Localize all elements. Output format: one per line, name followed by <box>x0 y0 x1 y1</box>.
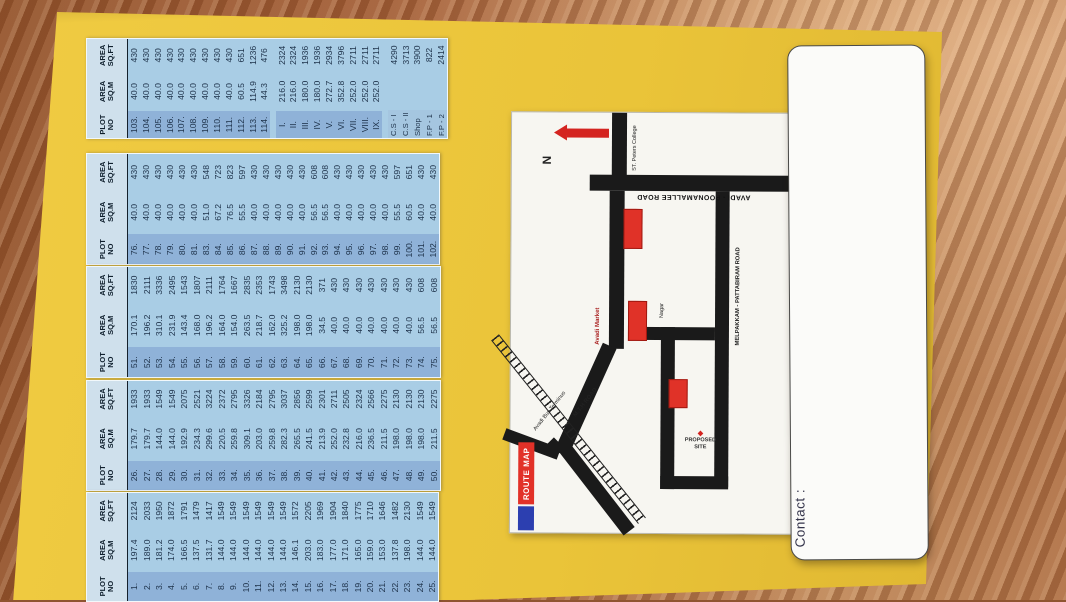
plot-no-cell: 32. <box>203 461 215 490</box>
table-row: 59.154.01667 <box>228 267 240 377</box>
area-sqft-cell: 430 <box>164 154 176 190</box>
plot-no-cell: II. <box>288 111 300 138</box>
plot-no-cell: 30. <box>178 461 190 490</box>
landmark-marker-1 <box>623 209 642 249</box>
area-sqft-cell: 1543 <box>178 267 190 303</box>
plot-no-cell: 36. <box>253 461 265 490</box>
area-sqm-cell: 40.0 <box>199 72 211 112</box>
plot-no-cell: 1. <box>128 572 140 601</box>
table-row: 74.56.5608 <box>415 267 427 377</box>
plot-no-cell: 9. <box>227 572 239 601</box>
area-sqft-cell: 2711 <box>371 39 383 72</box>
area-sqft-cell: 1549 <box>277 493 289 529</box>
plot-no-cell: 72. <box>390 347 402 377</box>
table-row: 78.40.0430 <box>152 154 164 264</box>
column-header: AREASQ.FT <box>99 39 116 72</box>
table-row: 101.40.0430 <box>415 154 427 264</box>
area-sqm-cell: 40.0 <box>427 190 439 234</box>
plot-no-cell: 77. <box>140 234 152 264</box>
area-sqft-cell: 2566 <box>365 381 377 417</box>
area-sqft-cell: 2414 <box>435 39 447 71</box>
table-row: 109.40.0430 <box>199 39 211 138</box>
area-sqm-cell: 309.1 <box>240 417 252 461</box>
north-arrow <box>554 124 609 140</box>
area-sqft-cell: 1479 <box>190 493 202 529</box>
table-row: 89.40.0430 <box>272 154 284 264</box>
plot-no-cell: 13. <box>277 572 289 601</box>
area-sqft-cell: 1417 <box>202 493 214 529</box>
plot-no-cell: 33. <box>215 461 227 490</box>
table-row: 56.168.01807 <box>190 267 202 377</box>
table-row: 114.44.3476 <box>258 39 270 138</box>
table-row: 17.177.01904 <box>327 493 339 601</box>
area-sqft-cell: 430 <box>390 267 402 303</box>
column-header: AREASQ.FT <box>99 154 116 190</box>
plot-no-cell: 26. <box>128 461 140 490</box>
plot-no-cell: 61. <box>253 347 265 377</box>
plot-area-table-51-75: PLOTNOAREASQ.MAREASQ.FT51.170.1183052.19… <box>86 266 441 378</box>
area-sqft-cell: 430 <box>176 154 188 190</box>
area-sqm-cell: 252.0 <box>347 72 359 112</box>
area-sqm-cell: 171.0 <box>339 529 351 572</box>
area-sqft-cell: 608 <box>428 267 440 303</box>
table-row: 39.265.52856 <box>290 381 302 490</box>
table-row: 15.203.02205 <box>302 493 314 601</box>
area-sqm-cell: 198.0 <box>415 417 427 461</box>
table-header: PLOTNOAREASQ.MAREASQ.FT <box>87 381 128 490</box>
area-sqm-cell: 56.5 <box>320 190 332 234</box>
plot-no-cell: 15. <box>302 572 314 601</box>
plot-no-cell: 84. <box>212 234 224 264</box>
plot-no-cell: F.P - 1 <box>423 110 435 138</box>
plot-area-table-103-114: PLOTNOAREASQ.MAREASQ.FT103.40.0430104.40… <box>86 38 448 139</box>
area-sqm-cell: 40.0 <box>248 190 260 234</box>
route-map-banner: ROUTE MAP <box>518 442 534 504</box>
plot-no-cell: C.S - I <box>388 110 400 138</box>
area-sqm-cell: 40.0 <box>211 72 223 112</box>
area-sqft-cell: 2795 <box>228 381 240 417</box>
proposed-site-label: ◆ PROPOSED SITE <box>676 431 724 451</box>
area-sqft-cell: 430 <box>260 154 272 190</box>
plot-no-cell: 58. <box>215 347 227 377</box>
plot-no-cell: 10. <box>240 572 252 601</box>
area-sqft-cell: 430 <box>187 39 199 72</box>
plot-no-cell: 47. <box>390 461 402 490</box>
area-sqm-cell: 234.3 <box>190 417 202 461</box>
column-header: PLOTNO <box>99 111 116 138</box>
area-sqft-cell: 1549 <box>252 493 264 529</box>
table-row: 112.60.5651 <box>235 39 247 138</box>
plot-no-cell: 79. <box>164 234 176 264</box>
plot-no-cell: 57. <box>203 347 215 377</box>
table-row: 77.40.0430 <box>140 154 152 264</box>
column-header: AREASQ.FT <box>99 493 116 529</box>
desk-photo: { "table_headers": [["PLOT","NO"],["AREA… <box>0 0 1066 600</box>
area-sqft-cell: 430 <box>188 154 200 190</box>
area-sqft-cell: 2835 <box>240 267 252 303</box>
area-sqm-cell: 153.0 <box>376 529 388 572</box>
plot-no-cell: 14. <box>289 572 301 601</box>
area-sqft-cell: 1791 <box>178 493 190 529</box>
table-row: 85.76.5823 <box>224 154 236 264</box>
road-to-st-peters <box>612 113 627 177</box>
plot-no-cell: 64. <box>290 347 302 377</box>
area-sqft-cell: 430 <box>353 267 365 303</box>
area-sqm-cell: 114.9 <box>247 72 259 112</box>
area-sqm-cell: 259.8 <box>265 417 277 461</box>
area-sqft-cell: 1830 <box>128 267 140 303</box>
table-row: C.S - II3713 <box>400 39 412 138</box>
area-sqft-cell: 430 <box>223 39 235 72</box>
column-header: PLOTNO <box>99 572 116 601</box>
area-sqm-cell: 198.0 <box>303 303 315 347</box>
plot-no-cell: 97. <box>367 234 379 264</box>
area-sqft-cell: 2521 <box>190 381 202 417</box>
area-sqft-cell: 430 <box>355 154 367 190</box>
plot-no-cell: Shop <box>411 110 423 138</box>
area-sqm-cell: 213.9 <box>315 417 327 461</box>
area-sqft-cell: 3713 <box>400 39 412 71</box>
avadi-poonamallee-road <box>590 175 794 192</box>
table-row: 1.197.42124 <box>128 493 140 601</box>
area-sqm-cell: 40.0 <box>415 190 427 234</box>
table-row: I.216.02324 <box>276 39 288 138</box>
plot-no-cell: VI. <box>335 111 347 138</box>
area-sqft-cell: 2372 <box>215 381 227 417</box>
area-sqft-cell: 723 <box>212 154 224 190</box>
table-row: 98.40.0430 <box>379 154 391 264</box>
area-sqm-cell: 144.0 <box>165 417 177 461</box>
plot-no-cell: III. <box>299 111 311 138</box>
area-sqm-cell: 203.0 <box>302 529 314 572</box>
table-row: 10.144.01549 <box>240 493 252 601</box>
area-sqm-cell: 170.1 <box>128 303 140 347</box>
table-row: 63.325.23498 <box>278 267 290 377</box>
table-row: 88.40.0430 <box>260 154 272 264</box>
area-sqm-cell: 40.0 <box>353 303 365 347</box>
plot-no-cell: 65. <box>303 347 315 377</box>
table-row: 87.40.0430 <box>248 154 260 264</box>
area-sqft-cell: 2324 <box>276 39 288 72</box>
plot-no-cell: 69. <box>353 347 365 377</box>
plot-no-cell: 22. <box>389 572 401 601</box>
plot-no-cell: 17. <box>327 572 339 601</box>
area-sqm-cell: 144.0 <box>426 529 438 572</box>
table-row: 3.181.21950 <box>153 493 165 601</box>
area-sqft-cell: 3796 <box>335 39 347 72</box>
table-row: 20.159.01710 <box>364 493 376 601</box>
plot-no-cell: 101. <box>415 234 427 264</box>
table-row: 7.131.71417 <box>202 493 214 601</box>
area-sqft-cell: 430 <box>379 154 391 190</box>
plot-no-cell: 46. <box>378 461 390 490</box>
plot-no-cell: 52. <box>140 347 152 377</box>
plot-no-cell: 2. <box>140 572 152 601</box>
area-sqft-cell: 1840 <box>339 493 351 529</box>
area-sqft-cell: 2130 <box>290 267 302 303</box>
area-sqm-cell: 143.4 <box>178 303 190 347</box>
plot-no-cell: 40. <box>303 461 315 490</box>
plot-no-cell: 91. <box>296 234 308 264</box>
plot-no-cell: 55. <box>178 347 190 377</box>
area-sqm-cell: 180.0 <box>311 72 323 112</box>
area-sqm-cell: 236.5 <box>365 417 377 461</box>
area-sqm-cell: 183.0 <box>314 529 326 572</box>
area-sqm-cell: 137.5 <box>190 529 202 572</box>
area-sqft-cell: 1950 <box>153 493 165 529</box>
column-header: AREASQ.M <box>99 529 116 572</box>
area-sqft-cell: 548 <box>200 154 212 190</box>
column-header: AREASQ.M <box>99 303 116 347</box>
area-sqft-cell: 1764 <box>215 267 227 303</box>
area-sqft-cell: 1646 <box>376 493 388 529</box>
area-sqft-cell: 1549 <box>264 493 276 529</box>
table-row: 36.203.02184 <box>253 381 265 490</box>
area-sqft-cell: 430 <box>175 39 187 72</box>
plot-no-cell: 86. <box>236 234 248 264</box>
area-sqm-cell: 40.0 <box>365 303 377 347</box>
table-row: 95.40.0430 <box>343 154 355 264</box>
table-row: II.216.02324 <box>288 39 300 138</box>
plot-no-cell: 70. <box>365 347 377 377</box>
table-row: 44.216.02324 <box>353 381 365 490</box>
area-sqm-cell: 146.1 <box>289 529 301 572</box>
area-sqft-cell: 2353 <box>253 267 265 303</box>
contact-label: Contact : <box>792 489 807 548</box>
area-sqft-cell: 430 <box>343 154 355 190</box>
table-row: 30.192.92075 <box>178 381 190 490</box>
north-arrow-head-icon <box>554 124 567 140</box>
plot-no-cell: 23. <box>401 572 413 601</box>
plot-no-cell: 92. <box>308 234 320 264</box>
table-row: 103.40.0430 <box>128 39 140 138</box>
area-sqm-cell: 56.5 <box>308 190 320 234</box>
table-row: 81.40.0430 <box>188 154 200 264</box>
area-sqm-cell: 216.0 <box>276 72 288 112</box>
table-row: F.P - 22414 <box>435 39 447 138</box>
area-sqft-cell: 1872 <box>165 493 177 529</box>
plot-no-cell: 42. <box>328 461 340 490</box>
plot-no-cell: 95. <box>343 234 355 264</box>
avadi-market-label: Avadi Market <box>595 308 601 345</box>
area-sqft-cell: 2711 <box>347 39 359 72</box>
area-sqm-cell: 40.0 <box>260 190 272 234</box>
area-sqm-cell: 196.2 <box>140 303 152 347</box>
area-sqft-cell: 2130 <box>403 381 415 417</box>
area-sqm-cell: 40.0 <box>187 72 199 112</box>
table-row: 64.198.02130 <box>290 267 302 377</box>
area-sqm-cell: 40.0 <box>296 190 308 234</box>
area-sqft-cell: 371 <box>315 267 327 303</box>
plot-no-cell: 8. <box>215 572 227 601</box>
area-sqft-cell: 1482 <box>389 493 401 529</box>
plot-no-cell: 43. <box>340 461 352 490</box>
table-row: VI.352.83796 <box>335 39 347 138</box>
column-header: PLOTNO <box>99 347 116 377</box>
area-sqft-cell: 430 <box>272 154 284 190</box>
contact-card: Contact : <box>787 45 929 561</box>
area-sqm-cell: 263.5 <box>240 303 252 347</box>
plot-no-cell: C.S - II <box>400 110 412 138</box>
area-sqm-cell: 40.0 <box>390 303 402 347</box>
area-sqm-cell: 144.0 <box>240 529 252 572</box>
plot-no-cell: 27. <box>140 461 152 490</box>
area-sqm-cell: 40.0 <box>272 190 284 234</box>
area-sqft-cell: 430 <box>365 267 377 303</box>
table-row: 105.40.0430 <box>152 39 164 138</box>
plot-no-cell: 88. <box>260 234 272 264</box>
area-sqm-cell: 40.0 <box>188 190 200 234</box>
plot-no-cell: 25. <box>426 572 438 601</box>
area-sqft-cell: 2301 <box>315 381 327 417</box>
plot-no-cell: 99. <box>391 234 403 264</box>
area-sqft-cell: 2075 <box>178 381 190 417</box>
table-row: 13.144.01549 <box>277 493 289 601</box>
area-sqft-cell: 2184 <box>253 381 265 417</box>
plot-no-cell: 20. <box>364 572 376 601</box>
area-sqft-cell: 430 <box>403 267 415 303</box>
area-sqm-cell: 325.2 <box>278 303 290 347</box>
plot-no-cell: 108. <box>187 111 199 138</box>
area-sqm-cell: 60.5 <box>235 72 247 112</box>
table-header: PLOTNOAREASQ.MAREASQ.FT <box>87 493 128 601</box>
area-sqft-cell: 430 <box>128 154 140 190</box>
area-sqm-cell: 282.3 <box>278 417 290 461</box>
area-sqm-cell: 40.0 <box>284 190 296 234</box>
table-row: 9.144.01549 <box>227 493 239 601</box>
table-row: 38.282.33037 <box>278 381 290 490</box>
area-sqft-cell: 2205 <box>302 493 314 529</box>
area-sqm-cell <box>411 71 423 110</box>
area-sqft-cell: 2495 <box>165 267 177 303</box>
area-sqft-cell: 1969 <box>314 493 326 529</box>
plot-no-cell: 63. <box>278 347 290 377</box>
plot-no-cell: I. <box>276 111 288 138</box>
plot-no-cell: 29. <box>165 461 177 490</box>
plot-no-cell: 28. <box>153 461 165 490</box>
area-sqft-cell: 430 <box>199 39 211 72</box>
route-map-title: ROUTE MAP <box>522 447 531 500</box>
area-sqm-cell: 67.2 <box>212 190 224 234</box>
area-sqft-cell: 1904 <box>327 493 339 529</box>
column-header: AREASQ.FT <box>99 267 116 303</box>
plot-no-cell: 24. <box>413 572 425 601</box>
table-row: 54.231.92495 <box>165 267 177 377</box>
area-sqft-cell: 2130 <box>415 381 427 417</box>
area-sqm-cell: 231.9 <box>165 303 177 347</box>
area-sqft-cell: 608 <box>415 267 427 303</box>
plot-no-cell: 19. <box>351 572 363 601</box>
area-sqm-cell: 252.0 <box>359 72 371 112</box>
area-sqft-cell: 597 <box>236 154 248 190</box>
table-row: 48.198.02130 <box>403 381 415 490</box>
table-row: 91.40.0430 <box>296 154 308 264</box>
table-row: 79.40.0430 <box>164 154 176 264</box>
area-sqm-cell: 252.0 <box>328 417 340 461</box>
table-header: PLOTNOAREASQ.MAREASQ.FT <box>87 154 128 264</box>
plot-no-cell: 104. <box>140 111 152 138</box>
table-row: 21.153.01646 <box>376 493 388 601</box>
table-row: 35.309.13326 <box>240 381 252 490</box>
area-sqft-cell: 823 <box>224 154 236 190</box>
column-header: PLOTNO <box>99 234 116 264</box>
table-row: 70.40.0430 <box>365 267 377 377</box>
table-row: 47.198.02130 <box>390 381 402 490</box>
plot-no-cell: 21. <box>376 572 388 601</box>
plot-no-cell: 3. <box>153 572 165 601</box>
area-sqm-cell: 40.0 <box>403 303 415 347</box>
table-row: 92.56.5608 <box>308 154 320 264</box>
table-row: 104.40.0430 <box>140 39 152 138</box>
connector-road <box>637 327 715 340</box>
area-sqm-cell: 40.0 <box>355 190 367 234</box>
table-row: 113.114.91236 <box>247 39 259 138</box>
plot-no-cell: 50. <box>428 461 440 490</box>
area-sqft-cell: 2275 <box>428 381 440 417</box>
area-sqft-cell: 430 <box>152 39 164 72</box>
area-sqm-cell: 137.8 <box>389 529 401 572</box>
plot-no-cell: 48. <box>403 461 415 490</box>
area-sqm-cell: 40.0 <box>379 190 391 234</box>
area-sqm-cell: 144.0 <box>413 529 425 572</box>
area-sqft-cell: 2130 <box>303 267 315 303</box>
plot-no-cell: 6. <box>190 572 202 601</box>
table-row: 14.146.11572 <box>289 493 301 601</box>
plot-no-cell: 56. <box>190 347 202 377</box>
area-sqm-cell: 165.0 <box>351 529 363 572</box>
table-row: 94.40.0430 <box>331 154 343 264</box>
plot-no-cell: 12. <box>264 572 276 601</box>
area-sqft-cell: 1743 <box>265 267 277 303</box>
table-row: 26.179.71933 <box>128 381 140 490</box>
area-sqft-cell: 430 <box>331 154 343 190</box>
area-sqft-cell: 1933 <box>128 381 140 417</box>
area-sqm-cell <box>400 71 412 110</box>
area-sqm-cell: 166.5 <box>178 529 190 572</box>
table-row: 106.40.0430 <box>164 39 176 138</box>
table-row: 42.252.02711 <box>328 381 340 490</box>
plot-no-cell: 89. <box>272 234 284 264</box>
north-label: N <box>540 156 554 165</box>
area-sqm-cell: 40.0 <box>331 190 343 234</box>
area-sqft-cell: 2324 <box>288 39 300 72</box>
plot-no-cell: 103. <box>128 111 140 138</box>
area-sqm-cell: 40.0 <box>128 72 140 112</box>
table-row: 41.213.92301 <box>315 381 327 490</box>
table-row: F.P - 1822 <box>423 39 435 138</box>
area-sqm-cell: 179.7 <box>140 417 152 461</box>
plot-no-cell: 114. <box>258 111 270 138</box>
table-row: 6.137.51479 <box>190 493 202 601</box>
area-sqm-cell: 198.0 <box>290 303 302 347</box>
area-sqft-cell: 430 <box>427 154 439 190</box>
area-sqft-cell: 430 <box>328 267 340 303</box>
table-row: 84.67.2723 <box>212 154 224 264</box>
area-sqm-cell: 259.8 <box>228 417 240 461</box>
plot-no-cell: VIII. <box>359 111 371 138</box>
plot-no-cell: 59. <box>228 347 240 377</box>
landmark-marker-2 <box>628 301 647 341</box>
area-sqm-cell: 131.7 <box>202 529 214 572</box>
plot-no-cell: 105. <box>152 111 164 138</box>
area-sqft-cell: 1807 <box>190 267 202 303</box>
area-sqft-cell: 3326 <box>240 381 252 417</box>
area-sqm-cell: 55.5 <box>391 190 403 234</box>
area-sqm-cell: 198.0 <box>401 529 413 572</box>
area-sqm-cell: 189.0 <box>140 529 152 572</box>
area-sqft-cell: 2033 <box>140 493 152 529</box>
plot-no-cell: VII. <box>347 111 359 138</box>
